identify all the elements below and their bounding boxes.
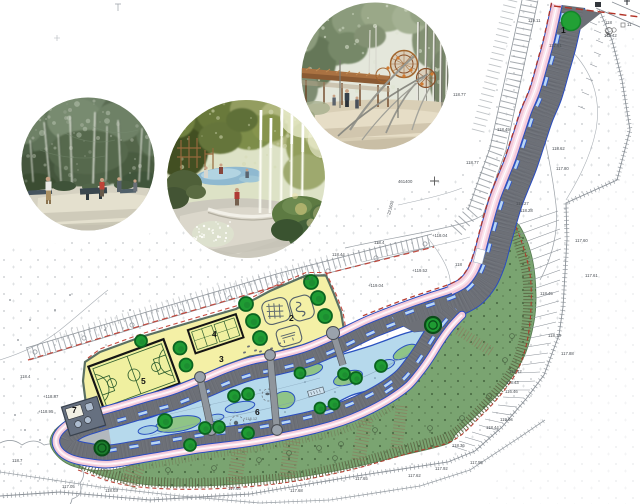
svg-text:+118.95: +118.95 — [38, 409, 54, 414]
svg-text:117.65: 117.65 — [355, 476, 368, 481]
svg-text:118.45: 118.45 — [540, 291, 553, 296]
svg-text:118.43: 118.43 — [506, 380, 519, 385]
svg-text:117.61: 117.61 — [549, 43, 562, 48]
svg-text:117.66: 117.66 — [228, 486, 241, 491]
svg-text:+118.4: +118.4 — [300, 276, 314, 281]
svg-text:118: 118 — [455, 262, 462, 267]
svg-text:118.44: 118.44 — [332, 252, 345, 257]
svg-text:461400: 461400 — [398, 179, 413, 184]
svg-text:118.49: 118.49 — [497, 127, 510, 132]
svg-text:117.60: 117.60 — [575, 238, 588, 243]
svg-text:119.11: 119.11 — [528, 18, 541, 23]
svg-text:3: 3 — [219, 354, 224, 364]
svg-text:117.80: 117.80 — [556, 166, 569, 171]
svg-text:117.68: 117.68 — [290, 488, 303, 493]
svg-text:+119.04: +119.04 — [368, 283, 384, 288]
svg-text:118.62: 118.62 — [552, 146, 565, 151]
svg-text:118.36: 118.36 — [452, 443, 465, 448]
svg-text:118.4: 118.4 — [20, 374, 31, 379]
svg-text:119.27: 119.27 — [516, 201, 529, 206]
svg-text:+118.04: +118.04 — [432, 233, 448, 238]
svg-text:2: 2 — [289, 313, 294, 323]
svg-text:116.46: 116.46 — [505, 389, 518, 394]
svg-text:117.05: 117.05 — [62, 484, 75, 489]
svg-text:5: 5 — [141, 376, 146, 386]
svg-text:118.44: 118.44 — [486, 425, 499, 430]
svg-text:+118.87: +118.87 — [43, 394, 59, 399]
svg-text:117.88: 117.88 — [561, 351, 574, 356]
svg-text:117.56: 117.56 — [470, 460, 483, 465]
svg-text:7: 7 — [72, 405, 77, 415]
svg-text:11: 11 — [627, 22, 632, 27]
svg-text:118.7: 118.7 — [12, 458, 23, 463]
svg-text:119.64: 119.64 — [500, 417, 513, 422]
svg-text:+119.52: +119.52 — [412, 268, 428, 273]
svg-text:1: 1 — [561, 25, 566, 35]
svg-text:6: 6 — [255, 407, 260, 417]
svg-text:118.03: 118.03 — [105, 488, 118, 493]
svg-text:119.42: 119.42 — [604, 33, 617, 38]
svg-text:118: 118 — [605, 20, 612, 25]
svg-text:118.13: 118.13 — [548, 333, 561, 338]
svg-text:117.62: 117.62 — [408, 473, 421, 478]
svg-text:117.61: 117.61 — [585, 273, 598, 278]
svg-text:118.42: 118.42 — [509, 369, 522, 374]
svg-text:118.77: 118.77 — [453, 92, 466, 97]
svg-text:4: 4 — [212, 329, 217, 339]
svg-text:117.92: 117.92 — [435, 466, 448, 471]
svg-text:118.77: 118.77 — [466, 160, 479, 165]
svg-text:118.4: 118.4 — [374, 240, 385, 245]
svg-text:118.28: 118.28 — [520, 208, 533, 213]
